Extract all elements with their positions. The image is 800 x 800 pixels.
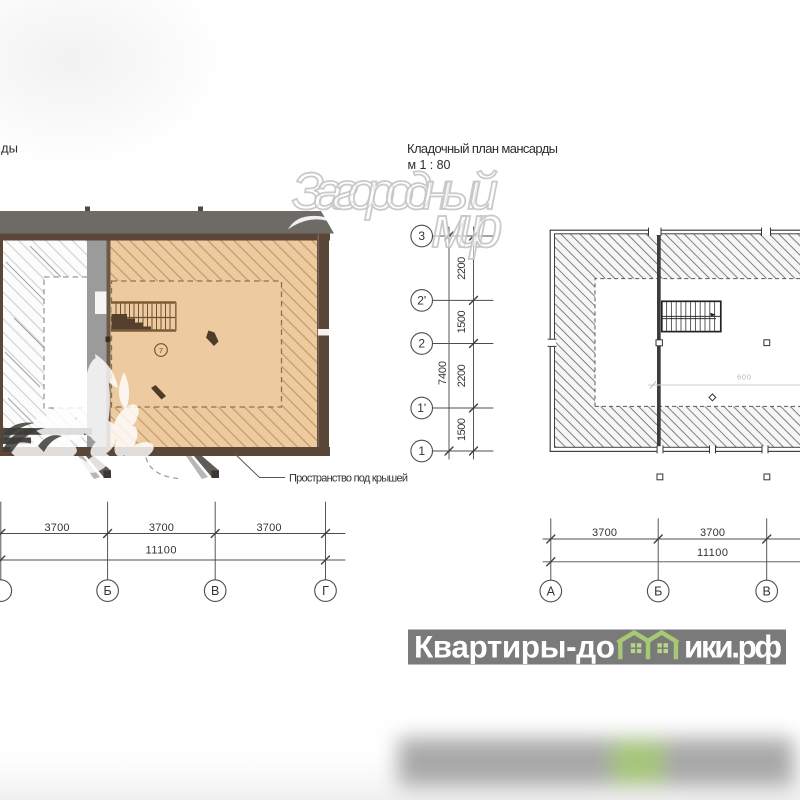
svg-text:3: 3 (418, 229, 425, 243)
svg-text:3700: 3700 (257, 522, 282, 534)
svg-text:11100: 11100 (146, 545, 177, 557)
svg-text:Кладочный план мансарды: Кладочный план мансарды (407, 141, 558, 156)
svg-text:Г: Г (322, 584, 329, 598)
svg-text:Квартиры-до: Квартиры-до (414, 628, 615, 664)
svg-text:мир: мир (432, 195, 503, 260)
svg-text:Пространство под крышей: Пространство под крышей (289, 473, 408, 485)
svg-text:В: В (763, 584, 771, 598)
svg-text:11100: 11100 (697, 547, 728, 559)
svg-text:Б: Б (654, 584, 662, 598)
svg-text:7400: 7400 (437, 361, 449, 385)
svg-text:3700: 3700 (700, 527, 725, 539)
svg-text:В: В (211, 584, 219, 598)
svg-text:ды: ды (1, 141, 18, 156)
svg-text:Б: Б (103, 584, 111, 598)
svg-text:3700: 3700 (45, 522, 70, 534)
svg-text:А: А (547, 584, 556, 598)
svg-text:2: 2 (418, 337, 425, 351)
svg-text:3700: 3700 (592, 527, 617, 539)
svg-text:2200: 2200 (456, 364, 468, 387)
svg-text:2': 2' (417, 294, 426, 308)
svg-text:1500: 1500 (456, 418, 468, 441)
svg-text:2200: 2200 (456, 257, 468, 280)
svg-text:1': 1' (417, 401, 426, 415)
svg-text:1: 1 (418, 444, 425, 458)
svg-text:7: 7 (159, 346, 163, 355)
svg-text:600: 600 (737, 373, 751, 382)
svg-text:3700: 3700 (149, 522, 174, 534)
svg-text:1500: 1500 (456, 310, 468, 333)
svg-text:ики.рф: ики.рф (684, 628, 782, 664)
